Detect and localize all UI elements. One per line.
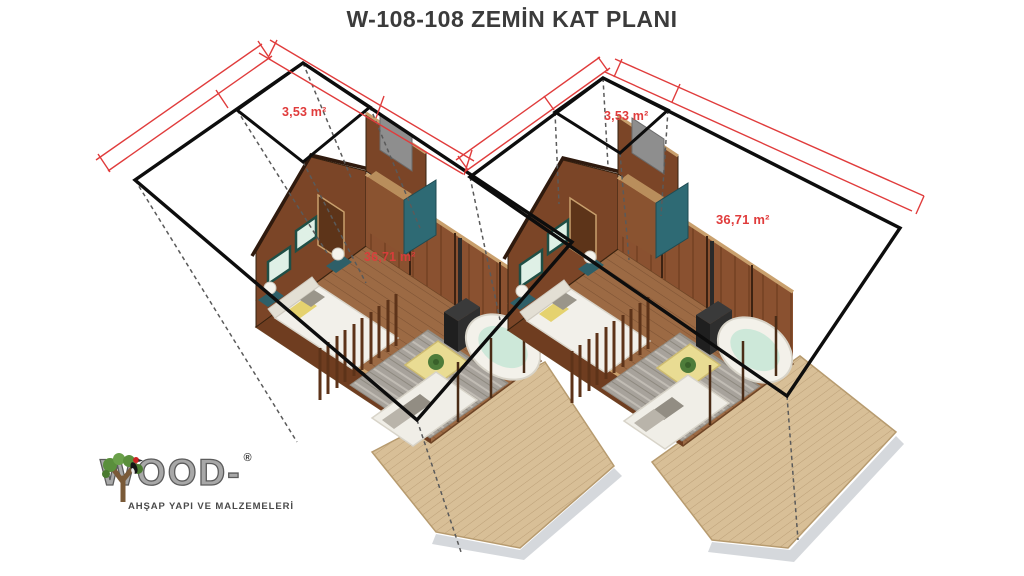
floor-plan-page: W-108-108 ZEMİN KAT PLANI	[0, 0, 1024, 576]
tree-y-icon	[102, 452, 144, 502]
area-label-right-floor: 36,71 m²	[716, 212, 770, 227]
area-label-right-porch: 3,53 m²	[604, 109, 648, 123]
brand-logo: WOOD- ® AHŞAP YAPI VE MALZEMELERİ	[100, 450, 310, 512]
registered-mark: ®	[244, 452, 252, 464]
dimension-lines	[96, 40, 924, 214]
area-label-left-floor: 36,71 m²	[364, 250, 416, 264]
brand-tagline: AHŞAP YAPI VE MALZEMELERİ	[128, 501, 310, 512]
area-label-left-porch: 3,53 m²	[282, 105, 326, 119]
